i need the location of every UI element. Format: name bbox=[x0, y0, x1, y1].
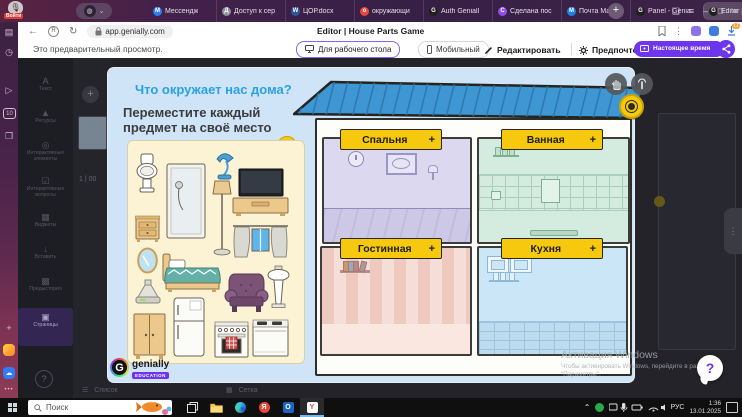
bathroom-dropzone[interactable] bbox=[477, 137, 630, 244]
game-title: Что окружает нас дома? bbox=[135, 82, 292, 97]
cloud-app-icon[interactable]: ☁ bbox=[3, 367, 15, 379]
downloads-badge: 11 bbox=[732, 23, 740, 29]
page-indicator: 1 | 00 bbox=[79, 176, 96, 183]
clock[interactable]: 1:36 13.01.2025 bbox=[689, 400, 721, 416]
bath-cup bbox=[491, 191, 501, 200]
view-grid-toggle[interactable]: ▦Сетка bbox=[226, 386, 258, 394]
address-bar-row: ← R ↻ app.genially.com Editor | House Pa… bbox=[18, 22, 742, 41]
search-doodle-fish bbox=[134, 400, 172, 415]
genially-logo: G genially EDUCATION bbox=[110, 358, 169, 379]
sidebar-item-insert[interactable]: ↓ Вставить bbox=[18, 244, 73, 261]
tab-tsor-docx[interactable]: W ЦОР.docx bbox=[285, 0, 354, 22]
background-icon: ▩ bbox=[18, 276, 73, 286]
tab-favicon: М bbox=[153, 7, 162, 16]
login-badge[interactable]: Войти bbox=[4, 13, 23, 19]
editor-sidebar: A Текст ▲ Ресурсы ◎ Интерактивные элемен… bbox=[18, 58, 73, 398]
edge-browser-icon[interactable] bbox=[228, 398, 252, 417]
wall-sconce bbox=[428, 165, 438, 173]
preview-note: Это предварительный просмотр. bbox=[33, 44, 163, 54]
game-instruction: Переместите каждый предмет на своё место bbox=[123, 106, 313, 136]
plus-icon[interactable]: + bbox=[590, 243, 602, 255]
search-placeholder: Поиск bbox=[46, 403, 68, 412]
floor-lamp-item[interactable] bbox=[212, 179, 232, 257]
book bbox=[353, 261, 359, 272]
help-button[interactable]: ? bbox=[35, 370, 53, 388]
page-title: Editor | House Parts Game bbox=[317, 26, 424, 36]
nightstand-item[interactable] bbox=[135, 215, 160, 243]
search-icon bbox=[34, 404, 42, 412]
dishwasher-item[interactable] bbox=[252, 319, 289, 359]
file-explorer-icon[interactable] bbox=[204, 398, 228, 417]
extension-icon[interactable] bbox=[691, 26, 701, 36]
sidebar-item-widgets[interactable]: ▦ Виджеты bbox=[18, 212, 73, 229]
mirror-item[interactable] bbox=[137, 247, 158, 274]
divider bbox=[571, 43, 572, 55]
monitor-icon bbox=[305, 45, 314, 53]
notification-center-icon[interactable] bbox=[726, 402, 738, 413]
shapes-icon: ▲ bbox=[18, 108, 73, 118]
ghost-yellow-dot bbox=[654, 196, 665, 207]
checklist-icon: ☑ bbox=[18, 176, 73, 186]
tray-status-icons[interactable] bbox=[609, 402, 665, 413]
add-page-button[interactable]: + bbox=[82, 86, 99, 103]
tabs-counter-icon[interactable]: 10 bbox=[3, 108, 16, 119]
refrigerator-item[interactable] bbox=[172, 297, 206, 359]
close-window-button[interactable]: × bbox=[733, 6, 738, 16]
browser-sidebar-strip: ▤ ◷ ▷ 10 ❐ + ☁ ••• bbox=[0, 22, 18, 398]
share-icon bbox=[722, 44, 731, 54]
outlook-icon[interactable]: O bbox=[276, 398, 300, 417]
grid-icon: ▦ bbox=[226, 386, 233, 394]
windows-icon[interactable]: ❐ bbox=[3, 130, 15, 142]
genially-logo-icon: G bbox=[110, 358, 129, 377]
more-apps-icon[interactable]: ••• bbox=[3, 384, 15, 396]
back-icon[interactable]: ← bbox=[28, 26, 38, 37]
edit-button[interactable]: Редактировать bbox=[484, 45, 561, 55]
plus-icon[interactable]: + bbox=[429, 134, 441, 146]
hand-icon bbox=[611, 78, 622, 90]
living-floor bbox=[322, 324, 470, 354]
presentation-icon bbox=[640, 45, 649, 53]
tab-okruzhayushchi[interactable]: о окружающи bbox=[354, 0, 423, 22]
tap-icon bbox=[636, 78, 648, 90]
armchair-item[interactable] bbox=[224, 271, 269, 314]
tab-favicon: W bbox=[291, 7, 300, 16]
taskbar-apps: Я O Y bbox=[180, 398, 324, 417]
task-view-button[interactable] bbox=[180, 398, 204, 417]
maximize-button[interactable]: ▢ bbox=[717, 7, 724, 15]
downloads-icon[interactable]: 11 bbox=[727, 26, 736, 37]
bookmark-icon[interactable] bbox=[658, 26, 666, 36]
tab-favicon: G bbox=[429, 7, 438, 16]
editor-background: A Текст ▲ Ресурсы ◎ Интерактивные элемен… bbox=[18, 58, 742, 398]
plus-icon[interactable]: + bbox=[429, 243, 441, 255]
tv-stand-item[interactable] bbox=[232, 167, 289, 217]
pedestal-sink-item[interactable] bbox=[267, 265, 290, 309]
history-clock-icon[interactable]: ◷ bbox=[3, 46, 15, 58]
jar bbox=[500, 272, 506, 281]
comments-icon[interactable]: ❏ bbox=[672, 6, 680, 17]
sync-icon[interactable] bbox=[709, 26, 719, 36]
menu-icon[interactable]: ≡ bbox=[689, 6, 694, 16]
preview-toolbar: Это предварительный просмотр. Для рабоче… bbox=[18, 40, 742, 60]
tab-favicon: о bbox=[360, 7, 369, 16]
jar bbox=[509, 272, 515, 281]
room-label-bedroom[interactable]: Спальня + bbox=[340, 129, 442, 150]
windows-taskbar: Поиск Я O Y ⌃ bbox=[0, 398, 742, 417]
chevron-down-icon: ⌄ bbox=[99, 7, 105, 15]
assistant-help-button[interactable]: ? bbox=[697, 355, 723, 381]
mobile-view-button[interactable]: Мобильный bbox=[418, 41, 489, 58]
taskbar-search[interactable]: Поиск bbox=[28, 400, 172, 415]
sidebar-item-interactive-questions[interactable]: ☑ Интерактивные вопросы bbox=[18, 176, 73, 199]
pencil-icon bbox=[484, 46, 493, 55]
windows-logo-icon bbox=[8, 403, 17, 412]
sidebar-item-background[interactable]: ▩ Предыстория bbox=[18, 276, 73, 293]
bedroom-dropzone[interactable] bbox=[322, 137, 472, 244]
house-roof bbox=[293, 78, 643, 122]
windows-activation-watermark: Активация Windows Чтобы активировать Win… bbox=[561, 349, 711, 379]
video-icon[interactable]: ▷ bbox=[3, 84, 15, 96]
insert-icon: ↓ bbox=[18, 244, 73, 254]
widgets-icon: ▦ bbox=[18, 212, 73, 222]
view-list-toggle[interactable]: ☰Список bbox=[82, 386, 118, 394]
add-panel-icon[interactable]: + bbox=[3, 322, 15, 334]
jar bbox=[493, 272, 499, 281]
sidebar-item-pages[interactable]: ▣ Страницы bbox=[18, 308, 73, 346]
yandex-browser-icon[interactable]: Я bbox=[252, 398, 276, 417]
start-button[interactable] bbox=[0, 398, 24, 417]
curtains-window-item[interactable] bbox=[232, 223, 289, 261]
bath-cabinet bbox=[541, 179, 560, 203]
present-now-button[interactable]: Настоящее время bbox=[634, 41, 724, 57]
tab-messenger[interactable]: М Мессендж bbox=[148, 0, 216, 22]
list-icon: ☰ bbox=[82, 386, 88, 394]
room-label-bathroom[interactable]: Ванная + bbox=[501, 129, 603, 150]
antivirus-icon[interactable] bbox=[595, 403, 604, 412]
text-icon: A bbox=[18, 76, 73, 86]
furniture-tray bbox=[127, 140, 305, 364]
window-controls: ❏ ≡ – ▢ × bbox=[672, 0, 738, 22]
tab-dostup[interactable]: Д Доступ к сер bbox=[216, 0, 285, 22]
sidebar-panel-icon[interactable]: ▤ bbox=[3, 26, 15, 38]
stove-item[interactable] bbox=[214, 321, 249, 359]
wardrobe-item[interactable] bbox=[133, 313, 166, 360]
drag-mode-button[interactable] bbox=[605, 73, 627, 95]
picture-frame bbox=[386, 153, 417, 175]
room-label-kitchen[interactable]: Кухня + bbox=[501, 238, 603, 259]
cursor-icon: ◎ bbox=[18, 140, 73, 150]
bed-item[interactable] bbox=[162, 253, 222, 293]
desktop-view-button[interactable]: Для рабочего стола bbox=[296, 41, 400, 58]
side-drawer-handle[interactable]: ⋮ bbox=[724, 208, 742, 254]
tab-favicon: М bbox=[567, 7, 576, 16]
profile-pill[interactable]: ◍ ⌄ bbox=[76, 3, 112, 19]
new-tab-button[interactable]: + bbox=[608, 3, 624, 19]
page-thumbnail[interactable] bbox=[78, 116, 107, 150]
yandex-search-app-icon[interactable] bbox=[3, 344, 15, 356]
bath-mat bbox=[530, 230, 578, 236]
system-tray: ⌃ РУС 1:36 13.01.2025 bbox=[584, 398, 738, 417]
language-indicator[interactable]: РУС bbox=[670, 404, 684, 411]
room-label-living[interactable]: Гостинная + bbox=[340, 238, 442, 259]
tab-favicon: С bbox=[498, 7, 507, 16]
tray-expand-icon[interactable]: ⌃ bbox=[584, 403, 591, 412]
gear-icon bbox=[579, 46, 588, 55]
bedroom-floor bbox=[324, 208, 470, 242]
more-icon[interactable]: ⋮ bbox=[674, 26, 683, 37]
url-bar[interactable]: app.genially.com bbox=[87, 25, 172, 38]
kitchen-dropzone[interactable] bbox=[477, 246, 628, 356]
site-info-icon[interactable]: R bbox=[48, 26, 59, 37]
striped-wallpaper bbox=[322, 248, 470, 325]
toilet-item[interactable] bbox=[136, 153, 158, 193]
tab-sdelana[interactable]: С Сделана пос bbox=[492, 0, 561, 22]
pages-panel: + 1 | 00 bbox=[73, 58, 110, 398]
plus-icon[interactable]: + bbox=[590, 134, 602, 146]
preview-modal: Что окружает нас дома? Переместите кажды… bbox=[108, 68, 634, 382]
tab-strip: М Мессендж Д Доступ к сер W ЦОР.docx о о… bbox=[148, 0, 742, 22]
settings-gear-button[interactable] bbox=[619, 94, 644, 119]
living-room-dropzone[interactable] bbox=[320, 246, 472, 356]
pointer-mode-button[interactable] bbox=[631, 73, 653, 95]
sidebar-item-interactive-elements[interactable]: ◎ Интерактивные элементы bbox=[18, 140, 73, 163]
tab-auth-genially[interactable]: G Auth Geniall bbox=[423, 0, 492, 22]
gear-icon bbox=[628, 103, 635, 110]
reload-icon[interactable]: ↻ bbox=[69, 26, 77, 37]
pages-icon: ▣ bbox=[18, 312, 73, 322]
screen: 🎙 Войти ◍ ⌄ М Мессендж Д Доступ к сер W … bbox=[0, 0, 742, 417]
browser-tab-bar: 🎙 Войти ◍ ⌄ М Мессендж Д Доступ к сер W … bbox=[0, 0, 742, 22]
phone-icon bbox=[427, 45, 432, 54]
address-right-icons: ⋮ 11 bbox=[658, 26, 736, 37]
tab-favicon: Д bbox=[222, 7, 231, 16]
sidebar-item-resources[interactable]: ▲ Ресурсы bbox=[18, 108, 73, 125]
education-badge: EDUCATION bbox=[132, 372, 169, 379]
wall-clock bbox=[348, 151, 364, 167]
profile-avatar: ◍ bbox=[84, 5, 96, 17]
lock-icon bbox=[95, 27, 102, 36]
share-button[interactable] bbox=[717, 40, 735, 58]
url-text: app.genially.com bbox=[105, 27, 164, 36]
minimize-button[interactable]: – bbox=[703, 6, 708, 16]
sidebar-item-text[interactable]: A Текст bbox=[18, 76, 73, 93]
shower-item[interactable] bbox=[166, 163, 206, 239]
tab-favicon: G bbox=[636, 7, 645, 16]
cooker-hood-item[interactable] bbox=[135, 279, 161, 311]
yandex-app-active-icon[interactable]: Y bbox=[300, 398, 324, 417]
